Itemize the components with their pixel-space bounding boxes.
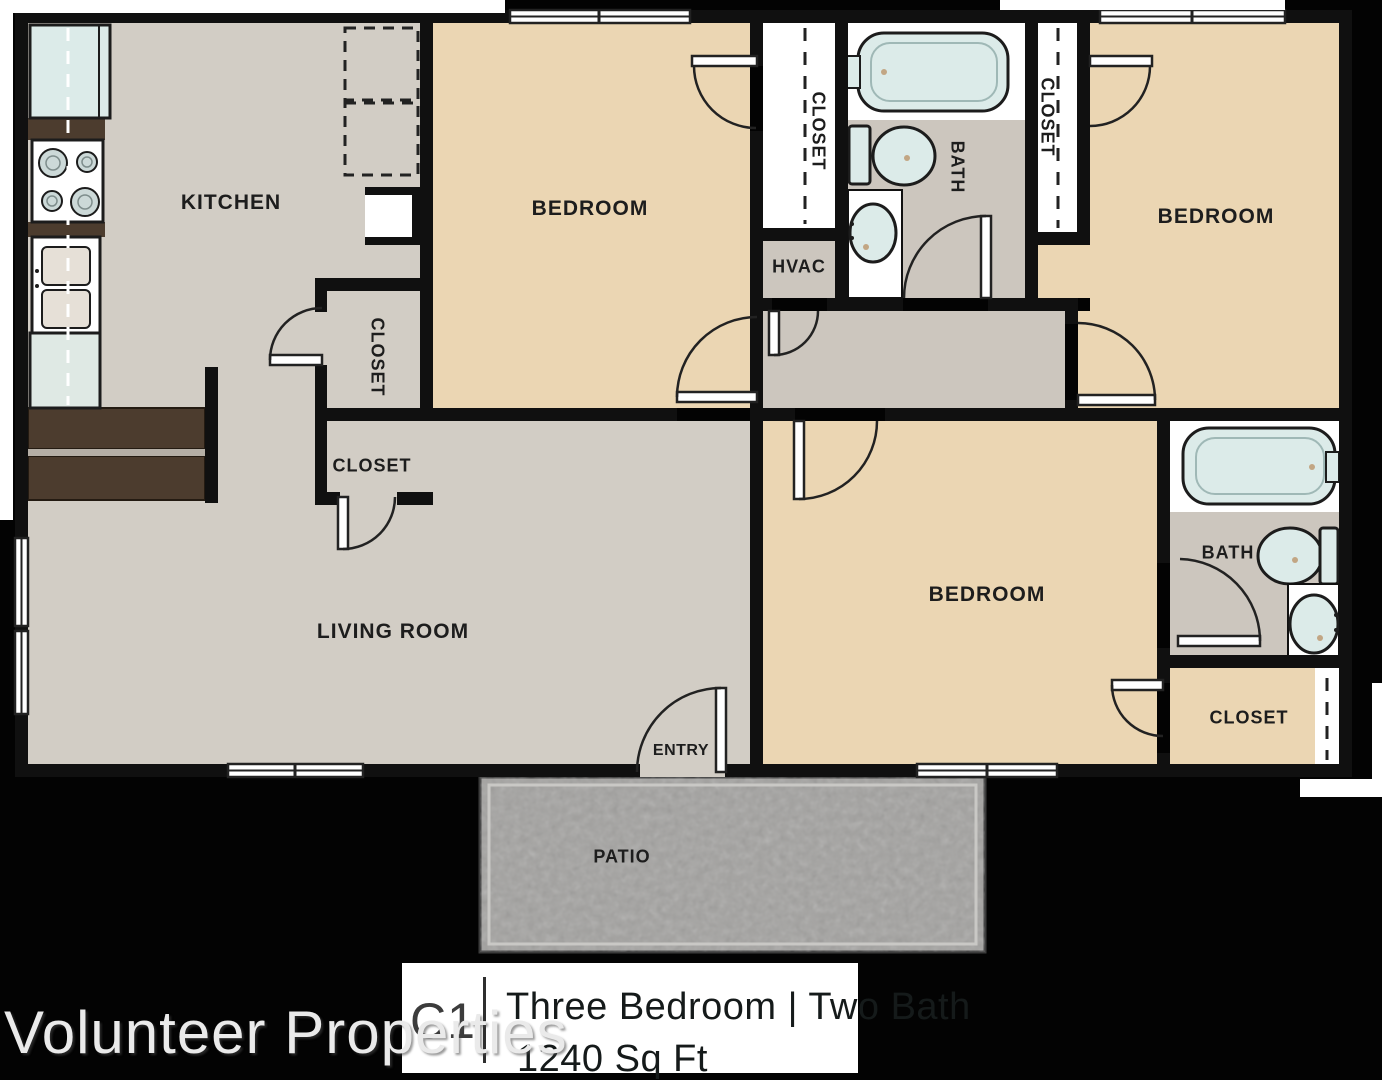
room-label-bedroom-top-right: BEDROOM [1158, 205, 1275, 229]
kitchen-sink [32, 237, 100, 333]
room-label-closet-kitchen: CLOSET [367, 317, 388, 396]
window-living-left-upper [15, 538, 28, 626]
room-label-bedroom-bottom: BEDROOM [929, 583, 1046, 607]
room-label-entry: ENTRY [653, 742, 709, 760]
artifact-strip-top-right [1000, 0, 1285, 10]
room-label-living-room: LIVING ROOM [317, 620, 469, 644]
sink-top [848, 190, 902, 298]
artifact-strip-left [0, 0, 13, 520]
artifact-strip-top-left [0, 0, 505, 13]
sink-bottom [1288, 584, 1339, 662]
window-living-bottom [228, 764, 363, 777]
room-label-closet-living: CLOSET [332, 456, 411, 477]
floor-plan-drawing [0, 0, 1382, 1080]
window-bedroom-top-left [510, 10, 690, 23]
bathtub-bottom [1183, 428, 1339, 504]
room-label-kitchen: KITCHEN [181, 191, 281, 215]
artifact-notch-bottom-right [1300, 779, 1382, 797]
entry-opening [640, 764, 725, 777]
window-bedroom-top-right [1100, 10, 1285, 23]
patio-slab [480, 777, 985, 952]
kitchen-counter-low [30, 333, 100, 408]
room-label-patio: PATIO [593, 847, 650, 868]
room-label-closet-bed-top-right: CLOSET [1037, 77, 1058, 156]
room-label-bedroom-top-left: BEDROOM [532, 197, 649, 221]
room-label-bath-top: BATH [947, 141, 968, 194]
room-label-closet-bottom: CLOSET [1209, 708, 1288, 729]
refrigerator [30, 25, 110, 118]
toilet-bottom [1258, 528, 1338, 584]
floor-plan-screenshot: KITCHEN BEDROOM BEDROOM BEDROOM LIVING R… [0, 0, 1382, 1080]
toilet-top [849, 126, 935, 185]
room-label-hvac: HVAC [772, 257, 826, 278]
room-label-bath-bottom: BATH [1202, 543, 1255, 564]
window-bedroom-bottom [917, 764, 1057, 777]
pantry-nook [365, 187, 420, 245]
window-living-left-lower [15, 631, 28, 714]
bathtub-top [847, 33, 1008, 111]
plan-title: Three Bedroom | Two Bath [506, 986, 971, 1029]
watermark: Volunteer Properties [4, 998, 568, 1067]
room-label-closet-bed-top-left: CLOSET [808, 91, 829, 170]
